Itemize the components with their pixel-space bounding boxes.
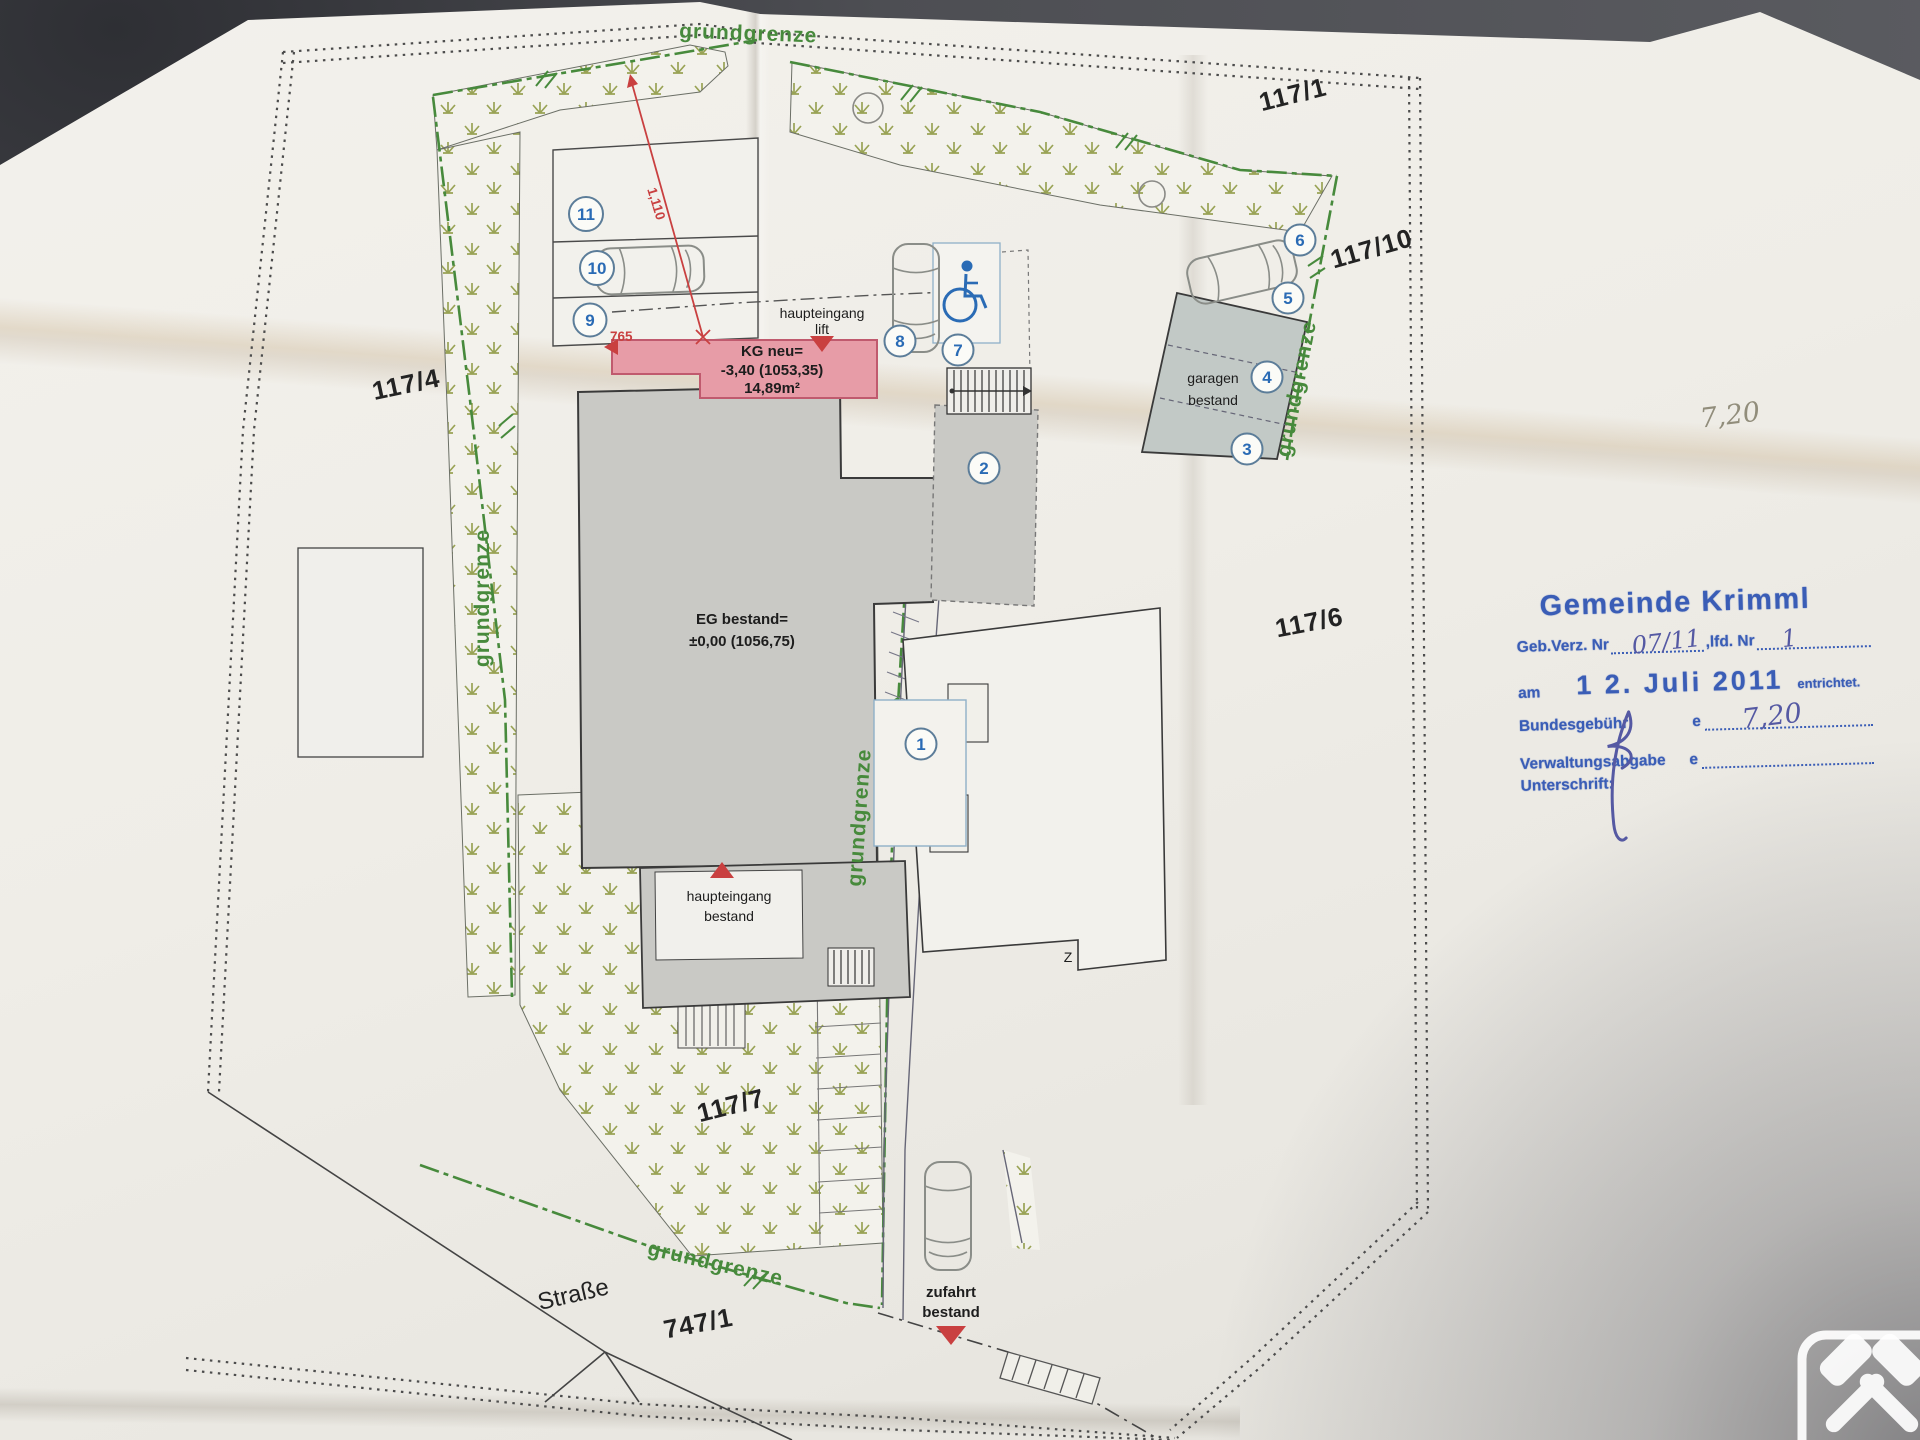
photo-corner-shadow — [0, 0, 1920, 1440]
crossed-hammers-logo — [1795, 1328, 1920, 1440]
photo-background: Z EG bestand= ±0,00 (1056,75) haupteinga… — [0, 0, 1920, 1440]
crossed-hammers-icon — [1809, 1330, 1920, 1440]
